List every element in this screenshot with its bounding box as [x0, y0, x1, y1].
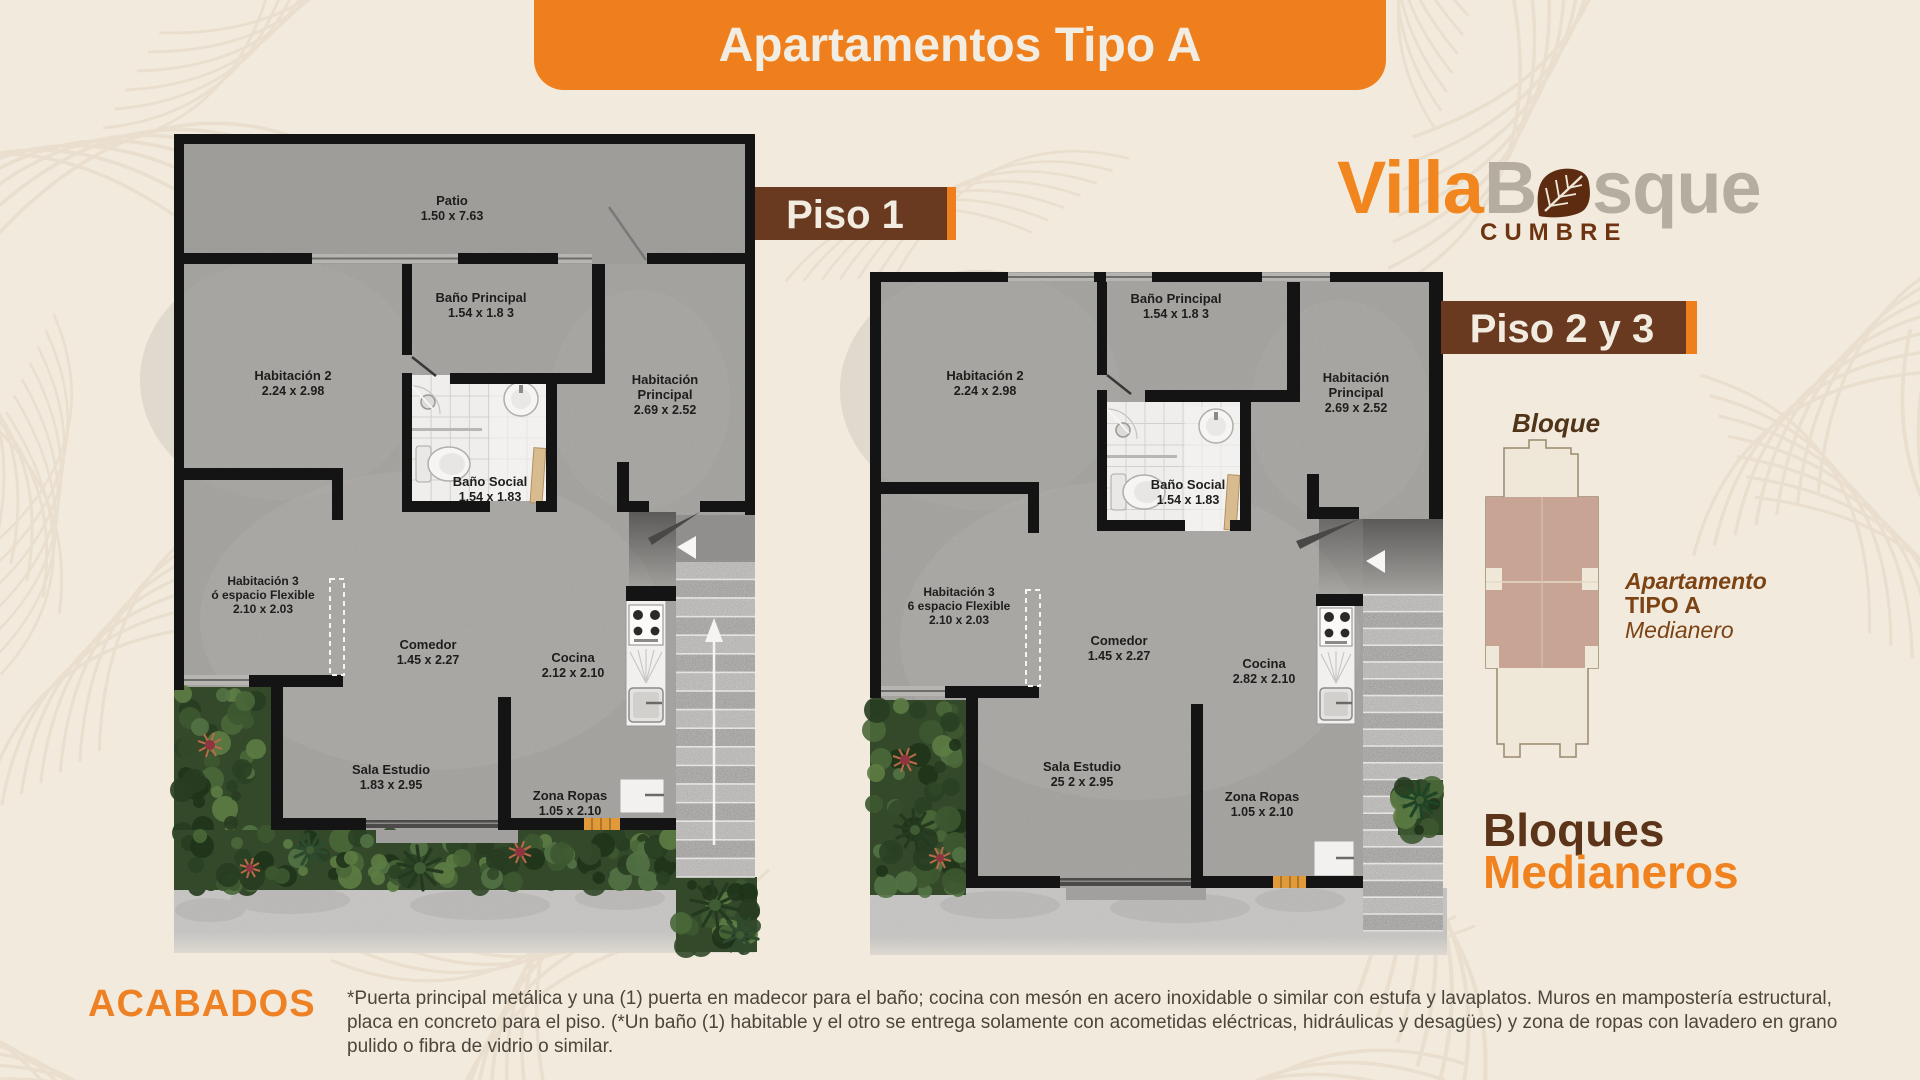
- svg-text:Baño Social: Baño Social: [453, 474, 527, 489]
- svg-text:2.12 x 2.10: 2.12 x 2.10: [542, 666, 605, 680]
- svg-text:TIPO A: TIPO A: [1625, 592, 1701, 618]
- svg-text:Cocina: Cocina: [1242, 656, 1286, 671]
- svg-text:CUMBRE: CUMBRE: [1480, 219, 1627, 246]
- svg-text:Habitación 3: Habitación 3: [227, 574, 299, 588]
- svg-text:Habitación 3: Habitación 3: [923, 585, 995, 599]
- svg-text:Zona Ropas: Zona Ropas: [533, 788, 607, 803]
- svg-text:Bloque: Bloque: [1512, 408, 1600, 438]
- svg-text:Comedor: Comedor: [1090, 633, 1147, 648]
- svg-text:Comedor: Comedor: [399, 637, 456, 652]
- svg-text:1.54 x 1.8 3: 1.54 x 1.8 3: [1143, 307, 1209, 321]
- svg-text:*Puerta principal metálica y u: *Puerta principal metálica y una (1) pue…: [347, 988, 1832, 1009]
- svg-text:1.54 x 1.83: 1.54 x 1.83: [459, 490, 522, 504]
- svg-text:1.83 x 2.95: 1.83 x 2.95: [360, 778, 423, 792]
- svg-text:ó espacio Flexible: ó espacio Flexible: [211, 588, 315, 602]
- svg-text:Medianero: Medianero: [1625, 617, 1734, 643]
- svg-text:1.05 x 2.10: 1.05 x 2.10: [1231, 805, 1294, 819]
- svg-text:2.69 x 2.52: 2.69 x 2.52: [634, 403, 697, 417]
- svg-text:Habitación: Habitación: [1323, 370, 1390, 385]
- svg-text:Apartamento: Apartamento: [1624, 568, 1767, 594]
- svg-text:Baño Principal: Baño Principal: [1130, 291, 1221, 306]
- svg-text:2.24 x 2.98: 2.24 x 2.98: [262, 384, 325, 398]
- svg-text:Villa: Villa: [1337, 146, 1485, 229]
- svg-text:Sala Estudio: Sala Estudio: [1043, 759, 1121, 774]
- svg-text:B: B: [1484, 146, 1536, 229]
- svg-text:2.10 x 2.03: 2.10 x 2.03: [233, 602, 293, 616]
- svg-text:Patio: Patio: [436, 193, 468, 208]
- svg-text:ACABADOS: ACABADOS: [88, 983, 316, 1025]
- svg-text:Cocina: Cocina: [551, 650, 595, 665]
- svg-text:Habitación 2: Habitación 2: [254, 368, 331, 383]
- svg-text:Piso 2 y 3: Piso 2 y 3: [1470, 307, 1655, 351]
- svg-text:1.54 x 1.83: 1.54 x 1.83: [1157, 493, 1220, 507]
- svg-text:6 espacio Flexible: 6 espacio Flexible: [908, 599, 1011, 613]
- svg-text:Baño Social: Baño Social: [1151, 477, 1225, 492]
- svg-text:Principal: Principal: [1329, 385, 1384, 400]
- svg-text:placa en concreto para el piso: placa en concreto para el piso. (*Un bañ…: [347, 1012, 1837, 1033]
- svg-text:Baño Principal: Baño Principal: [435, 290, 526, 305]
- svg-text:2.10 x 2.03: 2.10 x 2.03: [929, 613, 989, 627]
- svg-text:2.69 x 2.52: 2.69 x 2.52: [1325, 401, 1388, 415]
- svg-text:1.45 x 2.27: 1.45 x 2.27: [397, 653, 460, 667]
- svg-text:Zona Ropas: Zona Ropas: [1225, 789, 1299, 804]
- svg-text:25 2 x 2.95: 25 2 x 2.95: [1051, 775, 1114, 789]
- svg-text:Sala Estudio: Sala Estudio: [352, 762, 430, 777]
- svg-text:1.45 x 2.27: 1.45 x 2.27: [1088, 649, 1151, 663]
- svg-text:Habitación 2: Habitación 2: [946, 368, 1023, 383]
- svg-text:2.82 x 2.10: 2.82 x 2.10: [1233, 672, 1296, 686]
- svg-text:1.54 x 1.8 3: 1.54 x 1.8 3: [448, 306, 514, 320]
- svg-text:2.24 x 2.98: 2.24 x 2.98: [954, 384, 1017, 398]
- svg-text:pulido o fibra de vidrio o sim: pulido o fibra de vidrio o similar.: [347, 1036, 613, 1057]
- svg-text:sque: sque: [1592, 146, 1761, 229]
- svg-text:Principal: Principal: [638, 387, 693, 402]
- svg-text:1.05 x 2.10: 1.05 x 2.10: [539, 804, 602, 818]
- svg-text:Habitación: Habitación: [632, 372, 699, 387]
- svg-text:Piso 1: Piso 1: [786, 193, 904, 237]
- svg-text:Medianeros: Medianeros: [1483, 846, 1739, 898]
- svg-text:1.50 x 7.63: 1.50 x 7.63: [421, 209, 484, 223]
